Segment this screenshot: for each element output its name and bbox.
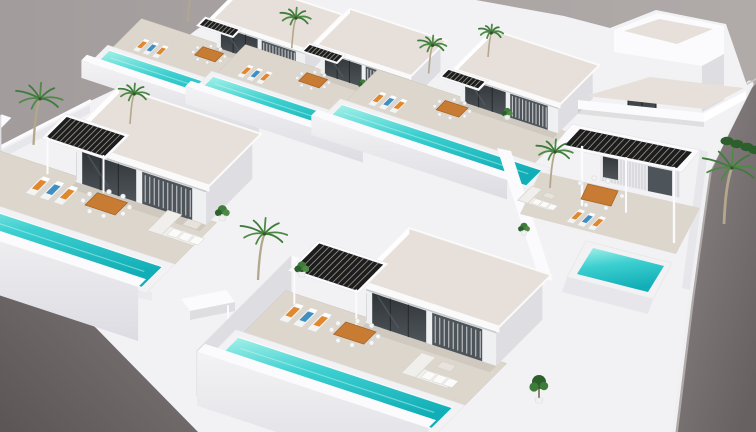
chair — [468, 110, 472, 114]
chair — [336, 338, 341, 343]
chair — [310, 87, 313, 90]
chair — [329, 327, 334, 332]
chair — [620, 194, 624, 198]
plant-pot — [521, 231, 527, 235]
chair — [107, 189, 112, 194]
chair — [101, 213, 106, 218]
chair — [448, 116, 452, 120]
plant-pot — [298, 272, 305, 277]
chair — [219, 48, 222, 51]
chair — [87, 209, 92, 214]
tree-foliage — [529, 382, 538, 391]
chair — [121, 211, 126, 216]
palm-crown — [263, 232, 266, 235]
chair — [327, 81, 330, 84]
corner-villa-glass-right — [648, 166, 672, 196]
scene-svg — [0, 0, 756, 432]
chair — [81, 198, 86, 203]
chair — [463, 101, 467, 105]
chair — [313, 70, 316, 73]
chair — [336, 321, 341, 326]
villa-development-render — [0, 0, 756, 432]
chair — [369, 323, 374, 328]
tree-pot — [535, 398, 543, 403]
plant-foliage — [223, 209, 230, 216]
plant-foliage — [302, 266, 309, 273]
palm-crown — [490, 31, 493, 34]
chair — [452, 98, 456, 102]
chair — [438, 113, 442, 117]
chair — [206, 61, 209, 64]
chair — [433, 104, 437, 108]
chair — [463, 114, 467, 118]
palm-crown — [294, 17, 297, 20]
chair — [121, 194, 126, 199]
chair — [300, 84, 303, 87]
chair — [350, 343, 355, 348]
chair — [296, 76, 299, 79]
chair — [196, 46, 199, 49]
chair — [87, 192, 92, 197]
palm-crown — [730, 166, 733, 169]
palm-crown — [133, 92, 136, 95]
chair — [300, 72, 303, 75]
chair — [355, 319, 360, 324]
chair — [223, 55, 226, 58]
plant-pot — [219, 216, 226, 221]
chair — [592, 176, 596, 180]
plant-foliage — [215, 209, 222, 216]
plant-pot — [505, 116, 510, 120]
palm-crown — [553, 150, 556, 153]
chair — [584, 203, 588, 207]
chair — [323, 85, 326, 88]
chair — [127, 205, 132, 210]
tree-foliage — [540, 382, 548, 390]
chair — [196, 58, 199, 61]
corner-villa-glass-right — [648, 166, 672, 196]
chair — [323, 74, 326, 77]
plant-foliage — [294, 266, 301, 273]
palm-crown — [38, 97, 41, 100]
palm-crown — [431, 44, 434, 47]
chair — [369, 341, 374, 346]
chair — [376, 334, 381, 339]
chair — [438, 100, 442, 104]
chair — [578, 181, 582, 185]
chair — [219, 59, 222, 62]
chair — [209, 44, 212, 47]
chair — [604, 206, 608, 210]
chair — [606, 179, 610, 183]
chair — [192, 50, 195, 53]
